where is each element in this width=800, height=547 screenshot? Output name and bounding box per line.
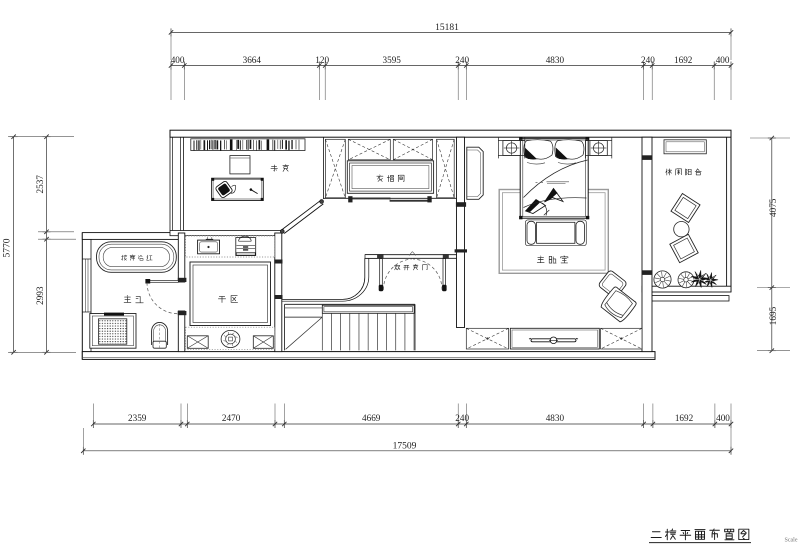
svg-text:1692: 1692 bbox=[674, 55, 693, 65]
svg-text:4830: 4830 bbox=[546, 413, 565, 423]
svg-text:240: 240 bbox=[641, 55, 655, 65]
svg-text:2537: 2537 bbox=[35, 175, 45, 194]
svg-text:2359: 2359 bbox=[128, 413, 147, 423]
svg-text:4830: 4830 bbox=[546, 55, 565, 65]
svg-text:3664: 3664 bbox=[243, 55, 262, 65]
svg-text:1695: 1695 bbox=[768, 306, 778, 325]
svg-text:5770: 5770 bbox=[3, 238, 13, 257]
svg-text:17509: 17509 bbox=[393, 441, 417, 451]
svg-text:400: 400 bbox=[171, 55, 185, 65]
svg-text:240: 240 bbox=[455, 413, 469, 423]
svg-text:15181: 15181 bbox=[435, 23, 459, 33]
svg-text:3595: 3595 bbox=[383, 55, 402, 65]
svg-text:240: 240 bbox=[455, 55, 469, 65]
svg-text:4669: 4669 bbox=[362, 413, 381, 423]
svg-text:1692: 1692 bbox=[675, 413, 694, 423]
svg-text:400: 400 bbox=[716, 413, 730, 423]
svg-text:Scale: Scale bbox=[785, 538, 798, 544]
svg-text:120: 120 bbox=[315, 55, 329, 65]
svg-text:2993: 2993 bbox=[35, 286, 45, 305]
svg-text:2470: 2470 bbox=[222, 413, 241, 423]
svg-text:400: 400 bbox=[716, 55, 730, 65]
svg-text:4075: 4075 bbox=[768, 198, 778, 217]
